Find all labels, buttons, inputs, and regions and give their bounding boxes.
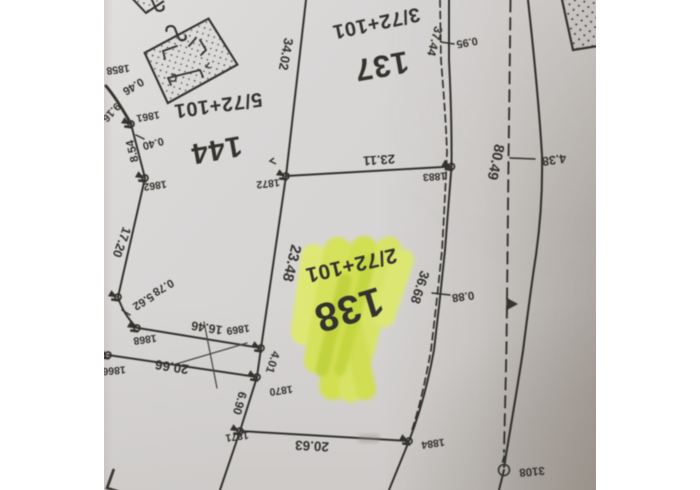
svg-text:1872: 1872 [256,176,281,190]
svg-text:20.63: 20.63 [294,438,329,455]
svg-text:1883: 1883 [422,169,446,183]
svg-text:1866: 1866 [102,363,126,377]
svg-text:23.11: 23.11 [363,151,396,168]
svg-text:3108: 3108 [518,464,545,478]
